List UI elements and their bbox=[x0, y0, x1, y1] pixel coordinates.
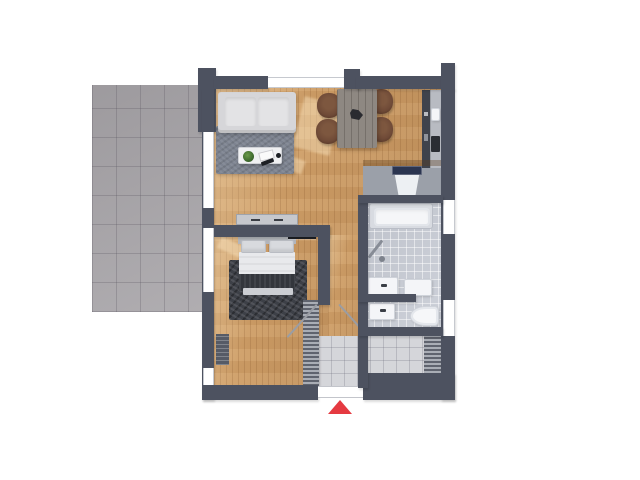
wall-bathroom-bottom bbox=[358, 327, 443, 336]
faucet bbox=[380, 309, 386, 312]
bathtub-basin bbox=[374, 208, 430, 226]
sofa-cushion bbox=[225, 97, 256, 126]
kitchen-item bbox=[424, 134, 428, 141]
coffee-table bbox=[238, 147, 282, 164]
bedroom-wardrobe bbox=[303, 300, 319, 386]
kitchen-cabinet bbox=[422, 90, 430, 168]
entrance-floor-grille bbox=[424, 331, 441, 375]
wall-living-bedroom bbox=[214, 225, 330, 237]
washing-machine-panel bbox=[392, 166, 422, 175]
wall-bathroom-top bbox=[358, 195, 443, 203]
bed-bench bbox=[243, 288, 293, 295]
wall-top-left bbox=[214, 76, 268, 89]
window-right-bathroom bbox=[443, 200, 455, 234]
wall-bedroom-hall bbox=[318, 225, 330, 305]
living-sideboard bbox=[236, 214, 298, 225]
wall-bottom-right bbox=[363, 373, 455, 400]
dining-table bbox=[337, 89, 377, 148]
bathtub bbox=[369, 203, 433, 229]
faucet bbox=[381, 284, 387, 287]
window-left-bedroom bbox=[203, 228, 214, 292]
entrance-door-opening bbox=[318, 386, 363, 398]
wall-bathroom-divider bbox=[358, 294, 416, 302]
sideboard-handle bbox=[251, 219, 260, 221]
sideboard-handle bbox=[274, 219, 283, 221]
kitchen-hob bbox=[431, 136, 440, 152]
plant bbox=[243, 151, 254, 162]
wall-top-right-corner bbox=[441, 63, 455, 90]
bed-pillow bbox=[241, 240, 266, 253]
window-top bbox=[268, 77, 344, 88]
wall-right bbox=[441, 88, 455, 400]
bedroom-radiator bbox=[216, 334, 229, 365]
window-left-living bbox=[203, 132, 214, 208]
toilet bbox=[410, 306, 439, 326]
wall-top-right bbox=[356, 76, 443, 89]
sofa-cushion bbox=[258, 97, 289, 126]
entrance-arrow bbox=[328, 400, 352, 414]
sofa bbox=[218, 92, 296, 133]
wall-bathroom-left bbox=[358, 197, 368, 388]
kitchen-item bbox=[424, 112, 428, 116]
bed-pillow bbox=[269, 240, 294, 253]
terrace-tiles bbox=[92, 85, 202, 312]
shower-head bbox=[379, 256, 385, 262]
floor-plan bbox=[0, 0, 640, 480]
table-centerpiece bbox=[350, 109, 363, 120]
wc-basin bbox=[369, 303, 395, 320]
window-right-wc bbox=[443, 300, 455, 336]
bowl bbox=[276, 153, 281, 158]
kitchen-sink bbox=[431, 108, 440, 121]
wall-bottom-left bbox=[202, 385, 318, 400]
